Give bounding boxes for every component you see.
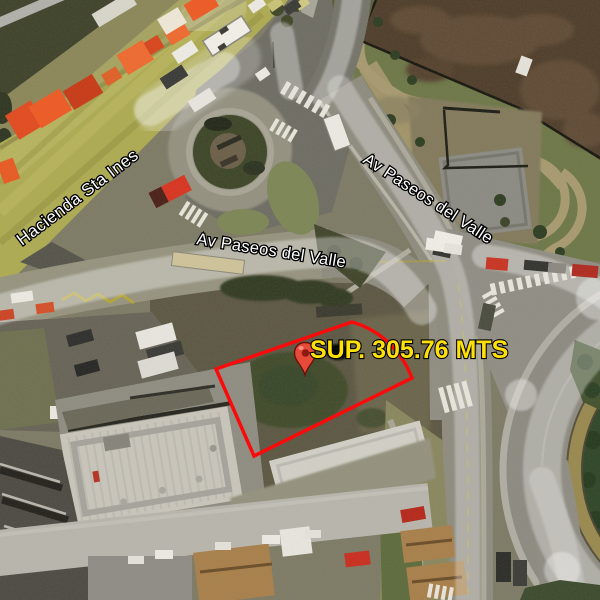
svg-text:SUP. 305.76 MTS: SUP. 305.76 MTS — [310, 336, 508, 364]
